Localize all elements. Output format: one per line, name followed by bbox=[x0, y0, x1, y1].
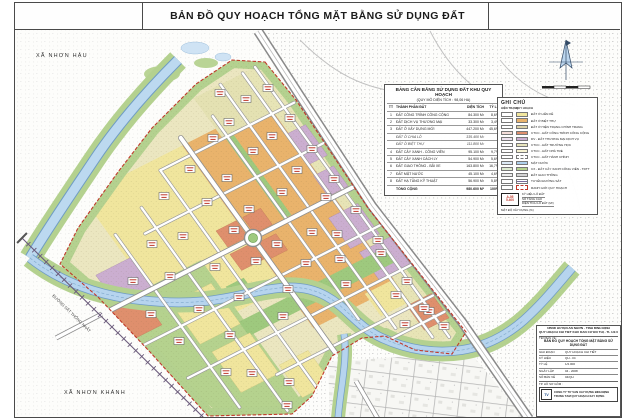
title-block: UBND HUYỆN AN NHƠN - TỈNH BÌNH ĐỊNH QUY … bbox=[536, 325, 621, 417]
legend-swatch bbox=[501, 125, 513, 129]
balance-table-header: TT THÀNH PHẦN ĐẤT DIỆN TÍCH TỶ LỆ bbox=[387, 103, 500, 110]
commune-label-top-left: XÃ NHƠN HẬU bbox=[36, 52, 88, 59]
planning-map-page: XÃ NHƠN HẬU XÃ NHƠN KHÁNH ĐƯỜNG SẮT THỐN… bbox=[0, 0, 625, 420]
legend-swatch bbox=[516, 137, 528, 141]
legend-swatch bbox=[501, 118, 513, 122]
company-dept: TRUNG TÂM QUY HOẠCH XÂY DỰNG bbox=[554, 395, 616, 399]
table-row-total: TỔNG CỘNG980.600 M²100% bbox=[387, 185, 500, 192]
legend: GHI CHÚ HIỆN TRẠNG QUY HOẠCH ĐẤT Ở LIỀN … bbox=[497, 97, 598, 215]
title-block-row: TỶ LỆ1/2.000 bbox=[539, 361, 618, 367]
balance-table-subtitle: (QUY MÔ DIỆN TÍCH : 98,06 HA) bbox=[387, 98, 500, 102]
legend-swatch bbox=[501, 149, 513, 153]
table-row: 3ĐẤT Ở XÂY DỰNG MỚI447.200 M²45,6% bbox=[387, 125, 500, 132]
parcel-symbol-callouts: KÝ HIỆU LÔ ĐẤT SỐ TẦNG CAO DIỆN TÍCH LÔ … bbox=[522, 193, 595, 208]
legend-swatch bbox=[501, 155, 513, 159]
legend-swatch bbox=[516, 118, 528, 122]
legend-swatch bbox=[501, 137, 513, 141]
org-line2: QUY HOẠCH CHI TIẾT KHU DÂN CƯ ĐÔ THỊ - T… bbox=[539, 331, 618, 335]
legend-swatch bbox=[516, 167, 528, 171]
legend-swatch bbox=[516, 131, 528, 135]
legend-swatch bbox=[516, 173, 528, 177]
legend-swatch bbox=[501, 131, 513, 135]
legend-swatch bbox=[516, 125, 528, 129]
balance-table-title: BẢNG CÂN BẰNG SỬ DỤNG ĐẤT KHU QUY HOẠCH bbox=[387, 87, 500, 98]
central-roundabout bbox=[245, 230, 262, 247]
title-band-separator-left bbox=[142, 3, 143, 29]
land-balance-table: BẢNG CÂN BẰNG SỬ DỤNG ĐẤT KHU QUY HOẠCH … bbox=[384, 84, 503, 196]
title-block-row: KÝ HIỆUQH - 04 bbox=[539, 355, 618, 361]
table-row: 1ĐẤT CÔNG TRÌNH CÔNG CỘNG84.300 M²8,6% bbox=[387, 111, 500, 118]
sheet-title-band: BẢN ĐỒ QUY HOẠCH TỔNG MẶT BẰNG SỬ DỤNG Đ… bbox=[15, 3, 620, 30]
legend-swatch bbox=[501, 112, 513, 116]
title-block-row: NGÀY LẬP04 - 2008 bbox=[539, 368, 618, 374]
legend-swatch bbox=[516, 179, 528, 183]
table-row: 5ĐẤT CÂY XANH CÁCH LY54.900 M²5,6% bbox=[387, 155, 500, 162]
title-band-separator-right bbox=[488, 3, 489, 29]
table-row: 2ĐẤT DỊCH VỤ THƯƠNG MẠI33.300 M²3,4% bbox=[387, 118, 500, 125]
company-stamp: TV CÔNG TY TƯ VẤN XÂY DỰNG BÌNH ĐỊNH TRU… bbox=[539, 387, 618, 402]
legend-swatch bbox=[501, 179, 513, 183]
table-row: 8ĐẤT HẠ TẦNG KỸ THUẬT56.900 M²5,8% bbox=[387, 177, 500, 184]
legend-swatch bbox=[501, 185, 513, 189]
page-title: BẢN ĐỒ QUY HOẠCH TỔNG MẶT BẰNG SỬ DỤNG Đ… bbox=[170, 10, 465, 22]
table-row: 7ĐẤT MẶT NƯỚC45.100 M²4,6% bbox=[387, 170, 500, 177]
title-block-row: GIAI ĐOẠNQUY HOẠCH CHI TIẾT bbox=[539, 349, 618, 355]
commune-label-bottom-left: XÃ NHƠN KHÁNH bbox=[64, 389, 126, 396]
legend-swatch bbox=[516, 161, 528, 165]
table-row: 4ĐẤT CÂY XANH - CÔNG VIÊN95.100 M²9,7% bbox=[387, 148, 500, 155]
title-block-row: SỐ BẢN VẼ04/QH bbox=[539, 374, 618, 380]
legend-swatch bbox=[501, 143, 513, 147]
title-block-footnote: TP. HỒ SƠ GỒM : bbox=[539, 381, 618, 386]
legend-swatch bbox=[501, 173, 513, 177]
table-row: ĐẤT Ở CHIA LÔ335.400 M² bbox=[387, 133, 500, 140]
scale-bar bbox=[542, 86, 590, 89]
sheet-name: BẢN ĐỒ QUY HOẠCH TỔNG MẶT BẰNG SỬ DỤNG Đ… bbox=[539, 340, 618, 348]
legend-swatch bbox=[516, 185, 528, 189]
parcel-symbol-note: A-05 5.400 KÝ HIỆU LÔ ĐẤT SỐ TẦNG CAO DI… bbox=[501, 193, 595, 208]
legend-swatch bbox=[516, 149, 528, 153]
density-callout: MẬT ĐỘ XÂY DỰNG (%) bbox=[501, 208, 595, 212]
legend-swatch bbox=[501, 167, 513, 171]
legend-swatch bbox=[501, 161, 513, 165]
legend-swatch bbox=[516, 143, 528, 147]
legend-swatch bbox=[516, 155, 528, 159]
sample-parcel-chip: A-05 5.400 bbox=[501, 193, 519, 206]
legend-column-headers: HIỆN TRẠNG QUY HOẠCH bbox=[501, 107, 595, 110]
table-row: 6ĐẤT GIAO THÔNG - BÃI XE163.800 M²16,7% bbox=[387, 162, 500, 169]
legend-swatch bbox=[516, 112, 528, 116]
table-row: ĐẤT Ở BIỆT THỰ111.800 M² bbox=[387, 140, 500, 147]
legend-item: RANH GIỚI QUY HOẠCH bbox=[501, 185, 595, 191]
company-logo: TV bbox=[541, 389, 552, 400]
